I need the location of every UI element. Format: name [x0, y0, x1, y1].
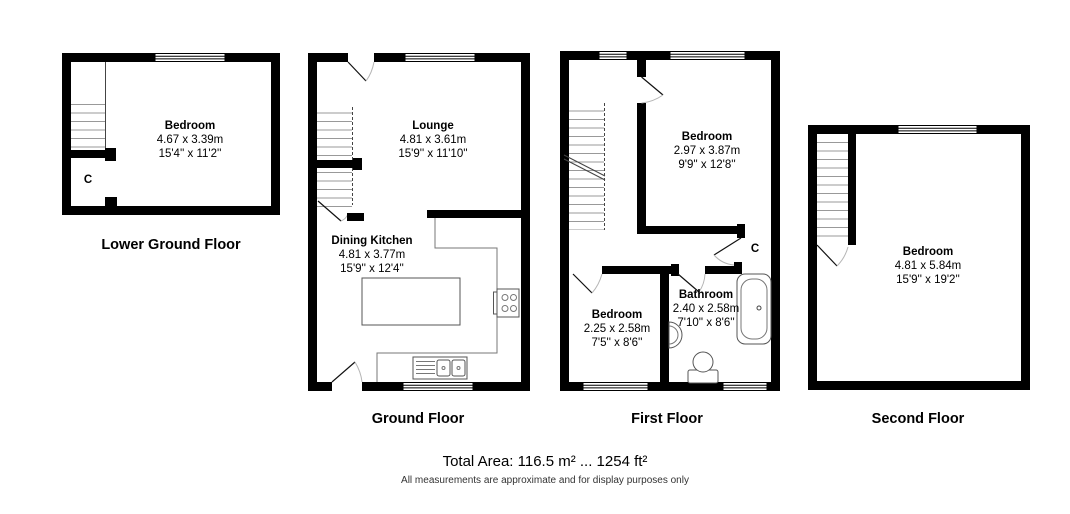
bedroom-door: [642, 77, 664, 103]
room-dim-imperial: 15'9'' x 19'2'': [895, 273, 961, 287]
room-label-lgf-bedroom: Bedroom 4.67 x 3.39m 15'4'' x 11'2'': [157, 119, 223, 161]
window-bottom-right: [723, 383, 767, 391]
window-top: [898, 126, 977, 134]
floor-label-ground: Ground Floor: [372, 411, 465, 427]
staircase: [317, 107, 362, 213]
window-top-right: [670, 52, 745, 60]
room-name: Bedroom: [157, 119, 223, 133]
room-dim-imperial: 9'9'' x 12'8'': [674, 158, 740, 172]
bath: [737, 274, 771, 344]
room-dim-imperial: 15'4'' x 11'2'': [157, 147, 223, 161]
total-area-text: Total Area: 116.5 m² ... 1254 ft²: [443, 453, 648, 470]
room-name: Bedroom: [895, 245, 961, 259]
room-label-lounge: Lounge 4.81 x 3.61m 15'9'' x 11'10'': [398, 119, 467, 161]
room-dim-metric: 4.67 x 3.39m: [157, 133, 223, 147]
floor-label-lower-ground: Lower Ground Floor: [101, 237, 240, 253]
exterior-wall: [313, 58, 526, 387]
room-dim-imperial: 7'5'' x 8'6'': [584, 336, 650, 350]
cupboard-door: [714, 238, 741, 265]
room-label-bathroom: Bathroom 2.40 x 2.58m 7'10'' x 8'6'': [673, 288, 739, 330]
floor-label-second: Second Floor: [872, 411, 965, 427]
room-dim-metric: 2.25 x 2.58m: [584, 322, 650, 336]
window-bottom-left: [583, 383, 648, 391]
interior-wall: [71, 148, 117, 207]
staircase: [817, 134, 856, 245]
lounge-kitchen-wall: [427, 210, 521, 218]
room-dim-metric: 4.81 x 5.84m: [895, 259, 961, 273]
cupboard-label-lgf: C: [84, 174, 92, 186]
room-dim-imperial: 15'9'' x 12'4'': [331, 262, 412, 276]
staircase: [564, 103, 605, 230]
floorplan-canvas: Bedroom 4.67 x 3.39m 15'4'' x 11'2'' Lou…: [0, 0, 1070, 514]
room-dim-metric: 4.81 x 3.77m: [331, 248, 412, 262]
window-bottom: [403, 383, 473, 391]
room-label-ff-bedroom-small: Bedroom 2.25 x 2.58m 7'5'' x 8'6'': [584, 308, 650, 350]
room-dim-imperial: 7'10'' x 8'6'': [673, 316, 739, 330]
window: [155, 54, 225, 62]
staircase: [71, 62, 106, 150]
entrance-door-top: [348, 53, 374, 81]
room-label-ff-bedroom: Bedroom 2.97 x 3.87m 9'9'' x 12'8'': [674, 130, 740, 172]
ground-floor-plan: [308, 53, 530, 391]
stair-door: [817, 245, 848, 266]
room-name: Dining Kitchen: [331, 234, 412, 248]
kitchen-door-bottom: [332, 362, 362, 391]
disclaimer-text: All measurements are approximate and for…: [401, 475, 689, 486]
kitchen-island: [362, 278, 460, 325]
room-name: Lounge: [398, 119, 467, 133]
room-label-sf-bedroom: Bedroom 4.81 x 5.84m 15'9'' x 19'2'': [895, 245, 961, 287]
room-name: Bedroom: [584, 308, 650, 322]
hob: [494, 289, 520, 317]
room-dim-metric: 2.97 x 3.87m: [674, 144, 740, 158]
cupboard-label-ff: C: [751, 243, 759, 255]
room-name: Bedroom: [674, 130, 740, 144]
small-bedroom-door: [573, 274, 602, 293]
room-dim-imperial: 15'9'' x 11'10'': [398, 147, 467, 161]
floor-label-first: First Floor: [631, 411, 703, 427]
toilet: [688, 352, 718, 383]
room-name: Bathroom: [673, 288, 739, 302]
room-label-dining-kitchen: Dining Kitchen 4.81 x 3.77m 15'9'' x 12'…: [331, 234, 412, 276]
room-dim-metric: 4.81 x 3.61m: [398, 133, 467, 147]
kitchen-sink: [413, 357, 467, 379]
room-dim-metric: 2.40 x 2.58m: [673, 302, 739, 316]
window-top-left: [599, 52, 627, 60]
window-top: [405, 54, 475, 62]
